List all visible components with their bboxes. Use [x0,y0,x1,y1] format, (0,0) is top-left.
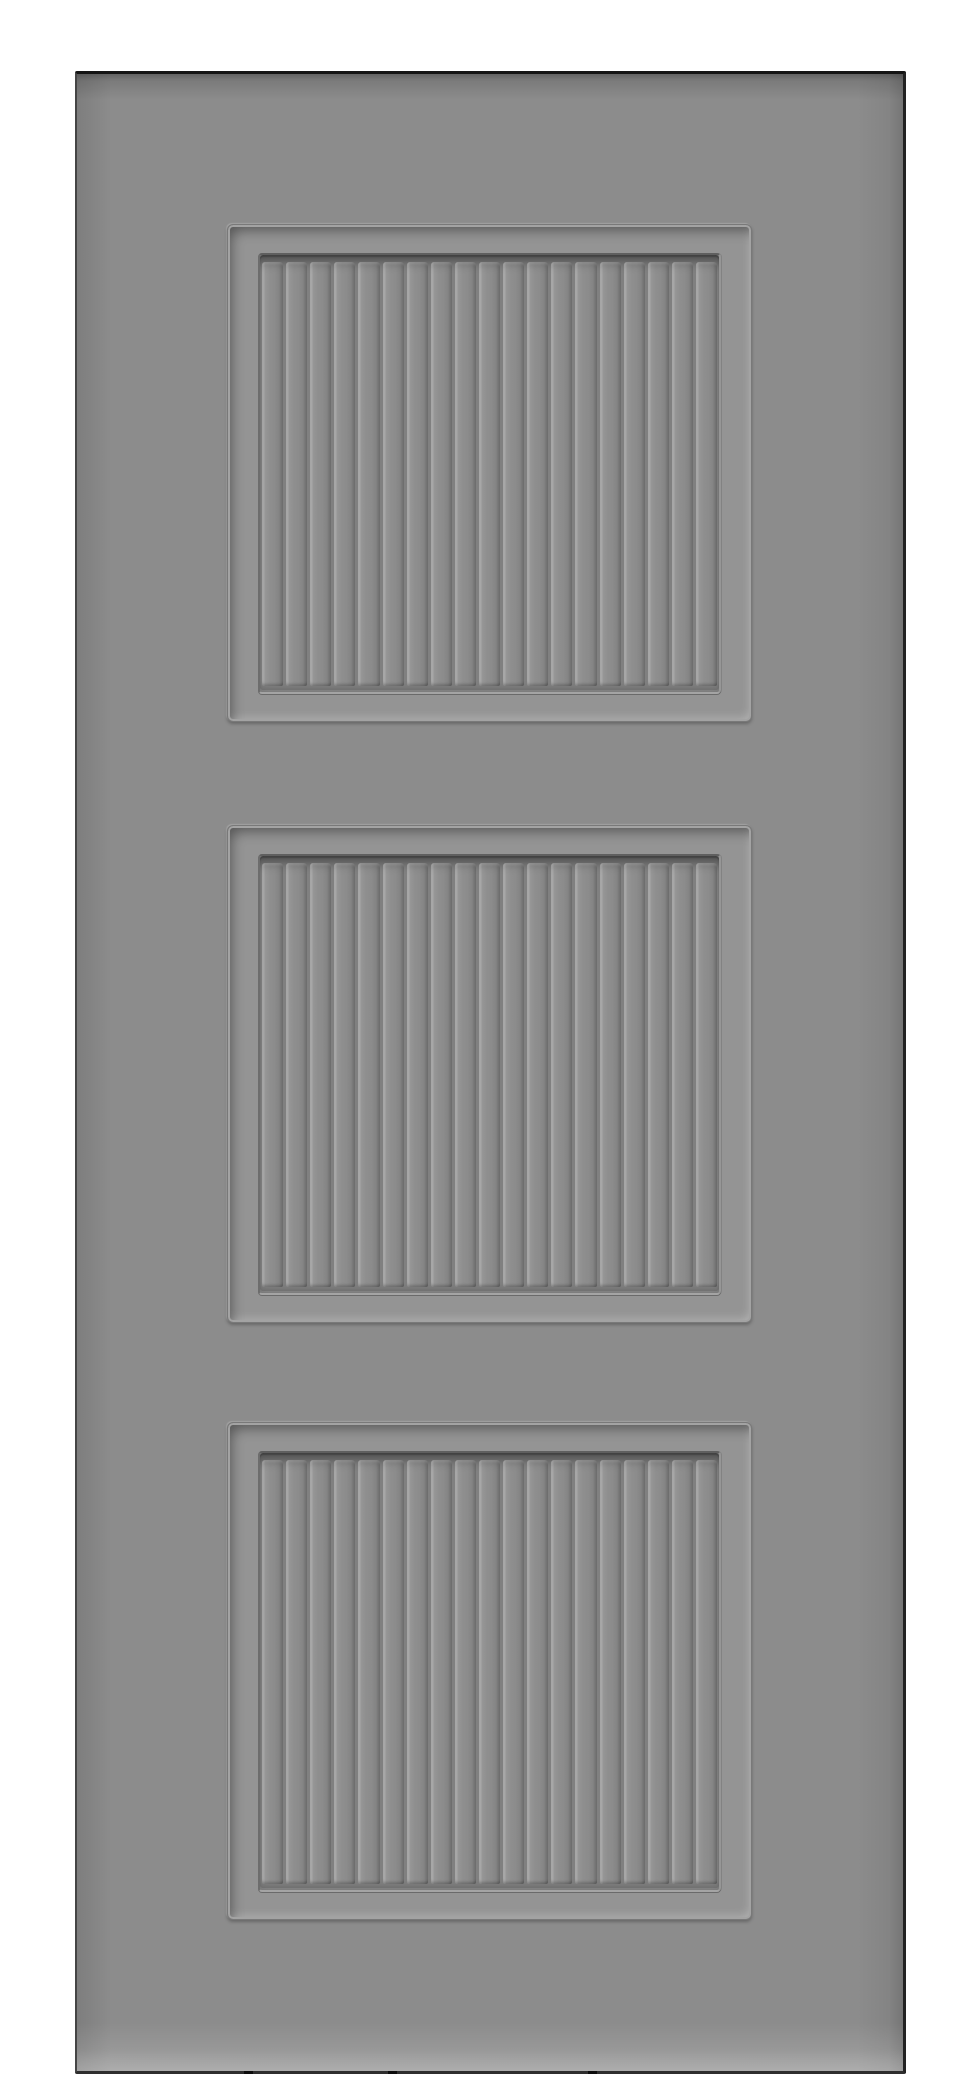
beadboard-slat [286,262,307,686]
beadboard-slat [624,863,645,1287]
beadboard-slat [383,262,404,686]
beadboard-slat [407,262,428,686]
beadboard-slat [672,863,693,1287]
beadboard-slat [648,262,669,686]
beadboard-slat [310,863,331,1287]
beadboard-slat [551,262,572,686]
photo-backdrop [0,0,980,2100]
beadboard-slat [575,262,596,686]
beadboard-slat [696,863,717,1287]
beadboard-slat [310,262,331,686]
beadboard-slat [527,863,548,1287]
beadboard-slat [503,1460,524,1884]
beadboard-slat [455,863,476,1287]
beadboard-slat [600,1460,621,1884]
beadboard-slat [648,863,669,1287]
beadboard-slat [527,1460,548,1884]
beadboard-slat [551,1460,572,1884]
beadboard-field-top [258,253,721,694]
door-panel-top [227,224,752,722]
beadboard-field-middle [258,854,721,1295]
beadboard-slat [696,1460,717,1884]
beadboard-slat [286,863,307,1287]
beadboard-slat [431,262,452,686]
door-slab [75,71,906,2074]
beadboard-slat [503,262,524,686]
beadboard-slat [624,262,645,686]
door-panel-middle [227,825,752,1323]
beadboard-slat [575,863,596,1287]
beadboard-field-bottom [258,1451,721,1892]
beadboard-slat [696,262,717,686]
beadboard-slat [527,262,548,686]
beadboard-slat [551,863,572,1287]
beadboard-slat [672,1460,693,1884]
beadboard-slat [624,1460,645,1884]
beadboard-slat [672,262,693,686]
beadboard-slat [455,262,476,686]
beadboard-slat [600,262,621,686]
door-panel-bottom [227,1422,752,1920]
beadboard-slat [503,863,524,1287]
beadboard-slat [310,1460,331,1884]
beadboard-slat [334,262,355,686]
beadboard-slat [334,863,355,1287]
beadboard-slat [286,1460,307,1884]
beadboard-slat [648,1460,669,1884]
beadboard-slat [358,1460,379,1884]
beadboard-slat [358,863,379,1287]
beadboard-slat [407,863,428,1287]
beadboard-slat [262,262,283,686]
beadboard-slat [431,1460,452,1884]
door-bottom-seam-mark [244,2071,253,2074]
beadboard-slat [479,262,500,686]
beadboard-slat [431,863,452,1287]
beadboard-slat [334,1460,355,1884]
beadboard-slat [575,1460,596,1884]
beadboard-slat [383,1460,404,1884]
beadboard-slat [479,863,500,1287]
beadboard-slat [262,1460,283,1884]
door-bottom-seam-mark [388,2071,397,2074]
beadboard-slat [600,863,621,1287]
beadboard-slat [262,863,283,1287]
beadboard-slat [455,1460,476,1884]
door-bottom-sheen [77,2049,903,2071]
beadboard-slat [383,863,404,1287]
beadboard-slat [358,262,379,686]
beadboard-slat [407,1460,428,1884]
beadboard-slat [479,1460,500,1884]
door-bottom-seam-mark [588,2071,597,2074]
